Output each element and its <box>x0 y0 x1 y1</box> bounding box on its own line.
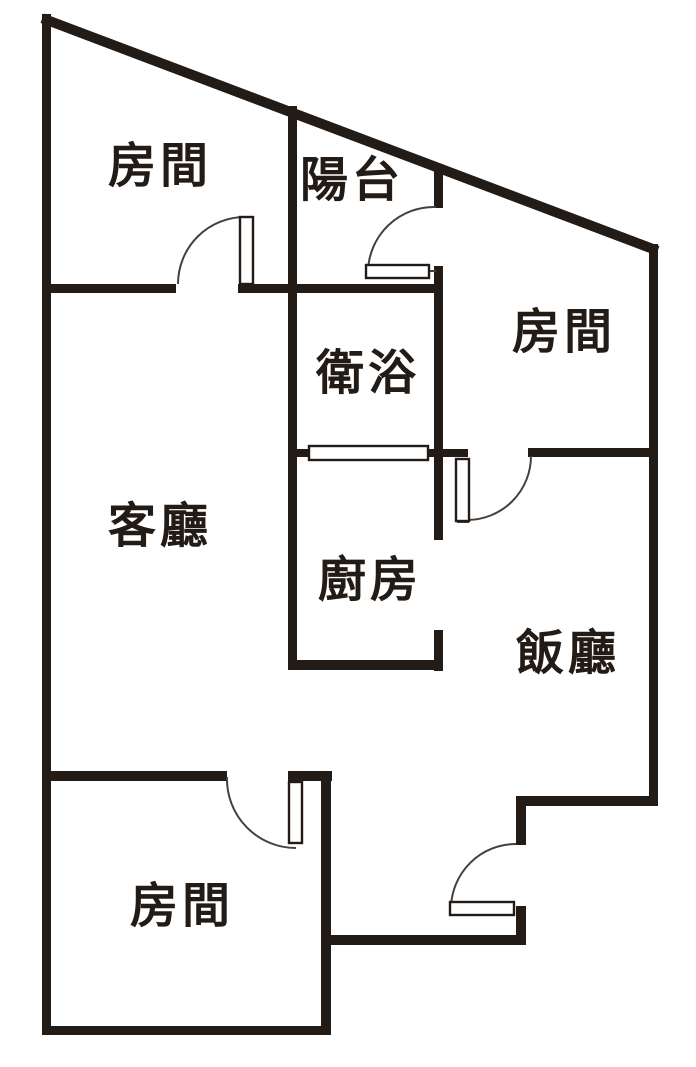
room-label-living-room: 客廳 <box>108 502 212 550</box>
wall-center-vertical <box>288 106 297 670</box>
room-label-bedroom-bottom: 房間 <box>130 882 234 930</box>
wall-dining-bottom-step <box>516 796 658 806</box>
wall-dining-bottom <box>321 935 526 945</box>
wall-kitchen-right-lower <box>434 630 443 671</box>
door-leaf-balcony <box>366 265 429 278</box>
door-swing-arc-bedroom-bottom <box>227 777 296 848</box>
wall-bathroom-right <box>434 266 443 540</box>
wall-upper-horizontal-left <box>42 284 176 293</box>
room-label-bedroom-top-left: 房間 <box>108 142 212 190</box>
wall-right-exterior <box>649 244 658 806</box>
door-leaf-bedroom-bottom <box>289 782 302 843</box>
door-swing-arc-bedroom-top-left <box>178 217 245 284</box>
wall-kitchen-bottom <box>288 660 443 670</box>
wall-top-diagonal-exterior <box>47 20 653 249</box>
wall-bedroom-bottom-top-right <box>288 771 332 781</box>
wall-bedroom-right-bottom <box>528 448 658 457</box>
wall-bedroom-bottom-top-left <box>42 771 227 781</box>
wall-upper-horizontal-right <box>238 284 436 293</box>
wall-bottom-exterior <box>42 1026 331 1035</box>
door-leaf-entry <box>450 902 514 915</box>
wall-left-exterior <box>42 14 51 1035</box>
wall-balcony-right-stub <box>434 164 443 208</box>
floor-plan-canvas: 房間 陽台 房間 衛浴 客廳 廚房 飯廳 房間 <box>0 0 696 1067</box>
wall-slidedoor-stub-right <box>427 449 443 457</box>
room-label-dining-room: 飯廳 <box>516 629 620 677</box>
door-swing-arc-bedroom-right <box>467 456 531 520</box>
room-label-kitchen: 廚房 <box>318 556 422 604</box>
door-leaf-bathroom-sliding <box>309 446 428 460</box>
room-label-bathroom: 衛浴 <box>316 349 420 397</box>
wall-bedroom-bottom-right <box>321 771 331 1035</box>
room-label-balcony: 陽台 <box>300 156 404 204</box>
wall-entry-upper <box>516 796 526 845</box>
door-leaf-bedroom-right <box>456 459 469 521</box>
door-swing-arc-entry <box>451 844 516 908</box>
door-swing-arc-balcony <box>368 207 436 272</box>
door-leaf-bedroom-top-left <box>240 217 253 284</box>
room-label-bedroom-right: 房間 <box>512 308 616 356</box>
wall-dining-door-stub <box>443 449 468 457</box>
